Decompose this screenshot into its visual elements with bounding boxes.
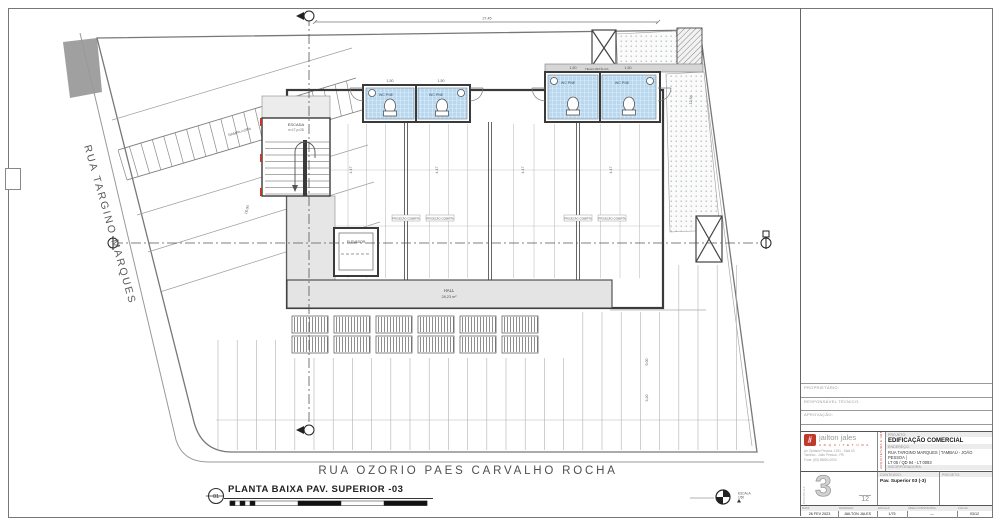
- projeto2-cell: PROJETO:: [940, 471, 992, 505]
- logo-icon: jj: [804, 434, 816, 446]
- sheet-number-cell: PRANCHA 3 12: [801, 471, 878, 505]
- conteudo-cell: CONTEÚDO: Pav. Superior 03 (-3): [878, 471, 940, 505]
- dim-text: 12,50: [689, 95, 694, 104]
- title-block: PROPRIETÁRIO: RESPONSÁVEL TÉCNICO: APROV…: [800, 8, 992, 516]
- street-name-bottom: RUA OZORIO PAES CARVALHO ROCHA: [318, 465, 617, 477]
- data-cell: DATA:26 FEV 2023: [801, 506, 839, 518]
- sheet-number: 3: [815, 471, 832, 504]
- wc-label-1: WC PNE: [379, 93, 394, 97]
- north-scale-value: 1/50: [738, 496, 744, 500]
- titleblock-pre-row-4: [801, 424, 992, 431]
- desenho-cell: DESENHO:JAILTON JALES: [838, 506, 878, 518]
- dim-text: 4,47: [521, 167, 525, 174]
- architect-logo-cell: jj jailton jales A R Q U I T E T U R A A…: [801, 432, 878, 471]
- detail-number: 01: [213, 494, 219, 500]
- dim-text: 1,50: [570, 66, 577, 70]
- projeto-value: EDIFICAÇÃO COMERCIAL: [886, 437, 992, 444]
- dim-text: 1,50: [438, 79, 445, 83]
- top-dimension-line: [313, 20, 660, 24]
- drawing-title: PLANTA BAIXA PAV. SUPERIOR -03: [228, 484, 403, 495]
- dim-text: 4,47: [435, 167, 439, 174]
- folha-cell: FOLHA:03/12: [957, 506, 992, 518]
- conteudo-value: Pav. Superior 03 (-3): [878, 477, 939, 484]
- sheet-total: 12: [859, 495, 871, 503]
- hall-area-label: 28,23 m²: [442, 295, 458, 299]
- prancha-side-label: PRANCHA: [802, 486, 806, 504]
- roof-strip-label: TELHA METÁLICA: [585, 67, 609, 71]
- stair-note: e=17 p=28: [288, 128, 303, 132]
- wc-label-4: WC PNE: [615, 81, 630, 85]
- titleblock-main: jj jailton jales A R Q U I T E T U R A A…: [801, 431, 992, 517]
- dim-text: 1,50: [387, 79, 394, 83]
- projeto2-label: PROJETO:: [940, 472, 992, 477]
- titleblock-bottom-row: DATA:26 FEV 2023 DESENHO:JAILTON JALES E…: [801, 505, 992, 518]
- logo-subtitle: A R Q U I T E T U R A: [819, 443, 869, 447]
- dim-text: 27,45: [483, 17, 492, 21]
- dim-text: 1,50: [625, 66, 632, 70]
- dim-text: 3,20: [645, 395, 649, 402]
- hall-label: HALL: [444, 288, 455, 293]
- wc-label-3: WC PNE: [561, 81, 576, 85]
- logo-name: jailton jales: [819, 434, 869, 442]
- titleblock-pre-row-3: APROVAÇÃO:: [801, 410, 992, 424]
- wc-label-2: WC PNE: [429, 93, 444, 97]
- titleblock-pre-row-1: PROPRIETÁRIO:: [801, 383, 992, 397]
- titleblock-pre-row-2: RESPONSÁVEL TÉCNICO:: [801, 397, 992, 410]
- logo-address-3: Fone: (83) 98800-0000: [804, 458, 874, 463]
- architect-side-note: ARQUITETURA E URBANISMO: [878, 432, 886, 471]
- graphic-scale-bar: [230, 501, 427, 506]
- project-info-cell: PROJETO: EDIFICAÇÃO COMERCIAL ENDEREÇO: …: [886, 432, 992, 471]
- endereco-line1: RUA TARGINO MARQUES | TAMBAÚ - JOÃO PESS…: [888, 450, 990, 460]
- drawing-sheet: ESCALA 1/50 01 PLANTA BAIXA PAV. SUPERIO…: [0, 0, 1000, 525]
- dim-text: 4,47: [349, 167, 353, 174]
- north-arrow-icon: [690, 490, 741, 504]
- elevator-label: ELEVADOR: [347, 240, 366, 244]
- dim-text: 5,00: [645, 359, 649, 366]
- stair-label: ESCADA: [288, 122, 305, 127]
- area-cell: ÁREA CONSTRUÍDA:—: [907, 506, 958, 518]
- dim-text: 4,47: [609, 167, 613, 174]
- escala-cell: ESCALA:1/75: [877, 506, 908, 518]
